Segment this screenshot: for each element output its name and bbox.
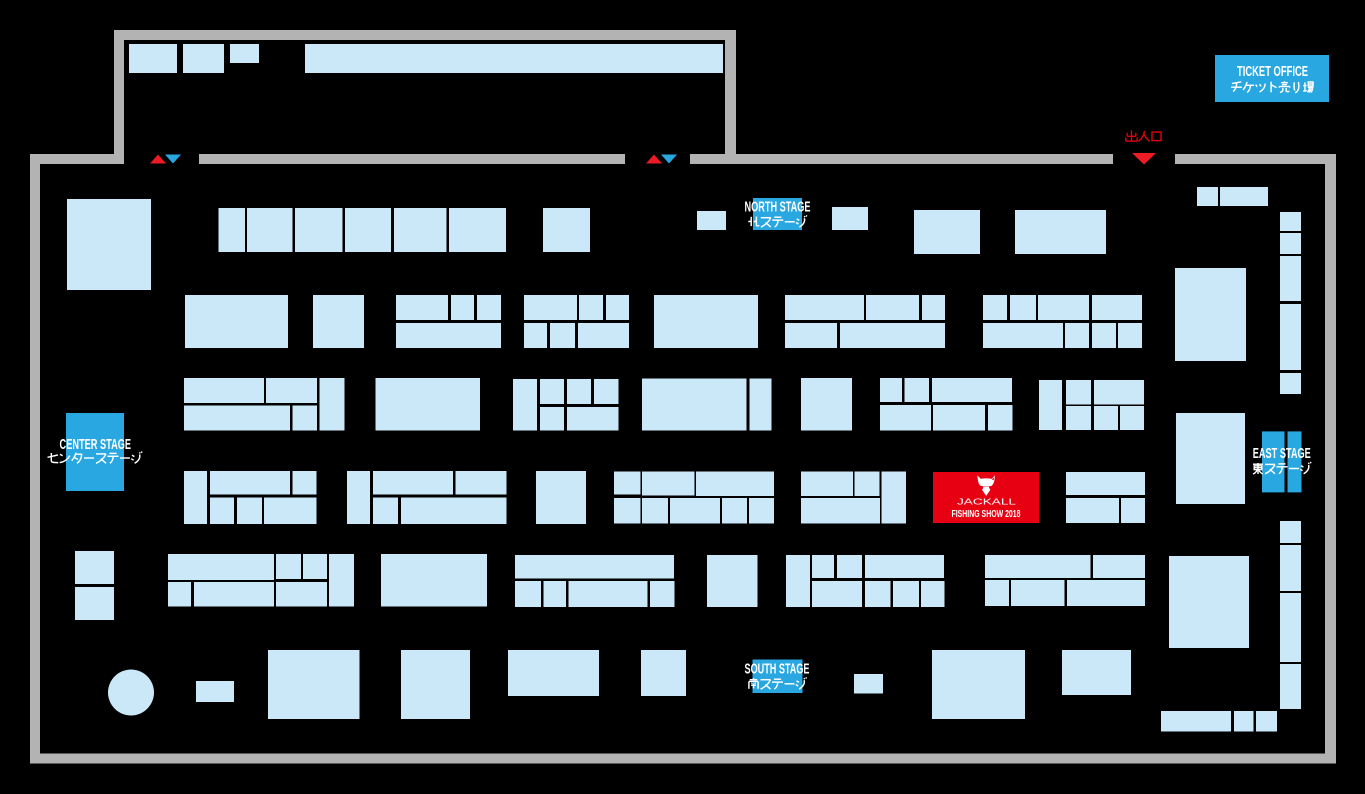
svg-text:FISHING SHOW 2018: FISHING SHOW 2018 (952, 509, 1021, 520)
svg-text:SOUTH STAGE: SOUTH STAGE (745, 662, 810, 678)
svg-text:CENTER STAGE: CENTER STAGE (60, 437, 132, 453)
svg-text:TICKET OFFICE: TICKET OFFICE (1237, 64, 1308, 80)
svg-text:NORTH STAGE: NORTH STAGE (745, 199, 811, 215)
svg-text:JACKALL: JACKALL (957, 498, 1017, 507)
svg-text:EAST STAGE: EAST STAGE (1253, 446, 1311, 462)
